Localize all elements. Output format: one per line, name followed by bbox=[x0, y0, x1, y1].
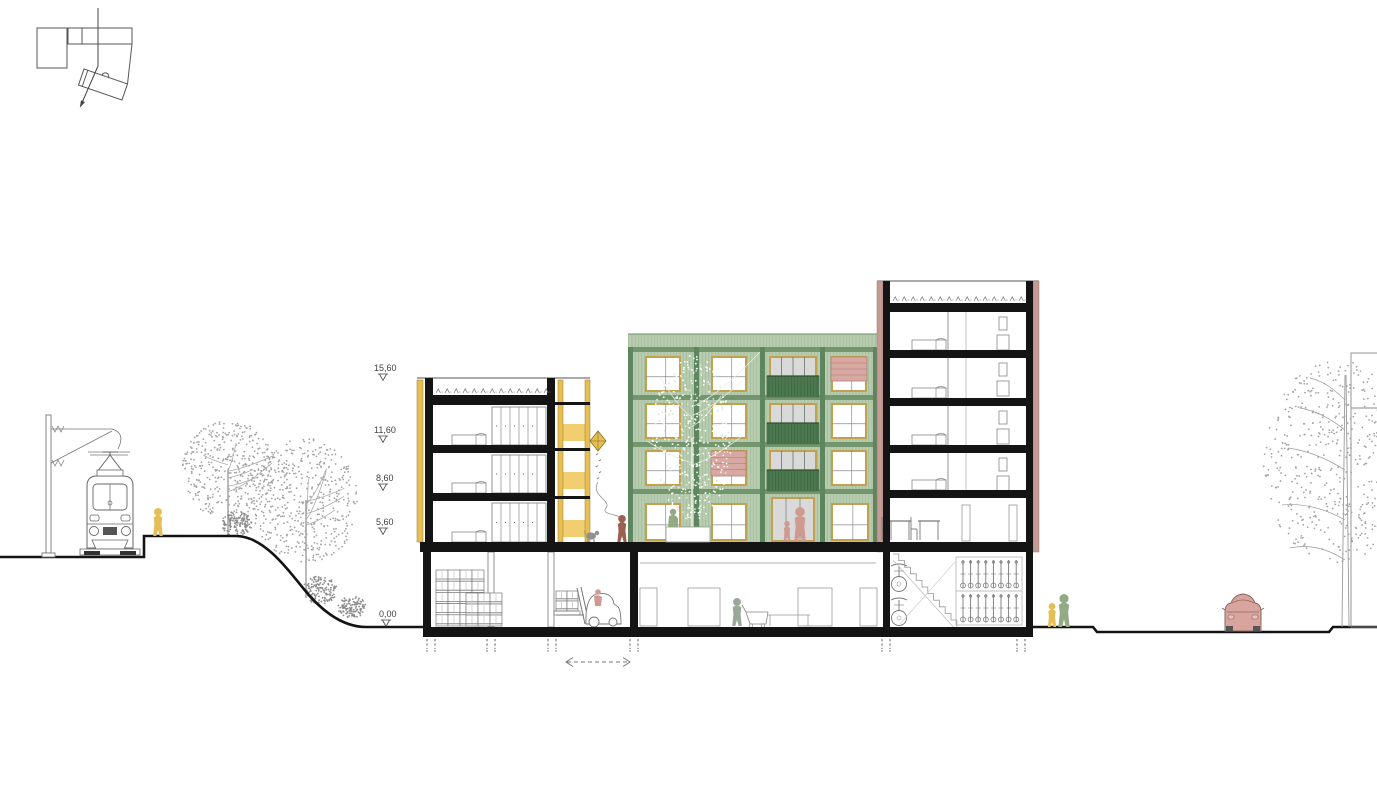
section-canvas: 15,60 11,60 8,60 5,60 0,00 bbox=[0, 0, 1377, 787]
architectural-section-drawing: 15,60 11,60 8,60 5,60 0,00 bbox=[0, 0, 1377, 787]
elevation-label: 8,60 bbox=[376, 473, 394, 483]
basement-level bbox=[420, 542, 1033, 652]
trees-left bbox=[182, 421, 366, 618]
elevation-label: 0,00 bbox=[379, 609, 397, 619]
key-plan bbox=[37, 8, 132, 108]
left-building-section bbox=[417, 378, 590, 542]
right-building-section bbox=[877, 281, 1039, 637]
elevation-label: 15,60 bbox=[374, 363, 397, 373]
tree-right bbox=[1263, 353, 1377, 627]
green-facade-building bbox=[628, 334, 878, 542]
section-extent-arrow bbox=[566, 658, 630, 667]
street-right bbox=[1048, 594, 1264, 631]
elevation-label: 5,60 bbox=[376, 517, 394, 527]
elevation-markers: 15,60 11,60 8,60 5,60 0,00 bbox=[374, 363, 397, 626]
elevation-label: 11,60 bbox=[374, 425, 396, 435]
